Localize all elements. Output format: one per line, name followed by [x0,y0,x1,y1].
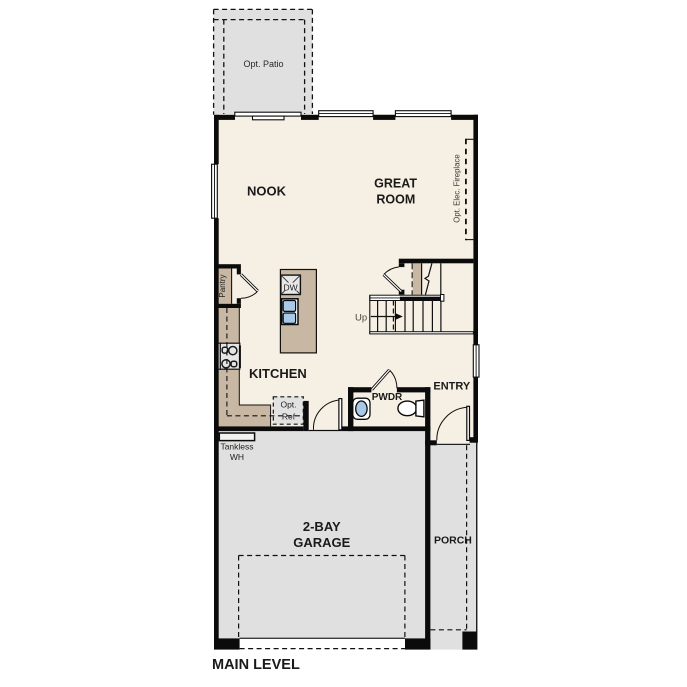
svg-text:Opt.: Opt. [280,400,296,410]
svg-text:2-BAY: 2-BAY [303,519,341,534]
svg-text:GARAGE: GARAGE [293,535,350,550]
svg-text:Up: Up [355,312,367,323]
svg-text:ROOM: ROOM [376,192,415,206]
svg-text:Tankless: Tankless [220,442,253,452]
svg-text:NOOK: NOOK [247,183,287,198]
svg-text:PWDR: PWDR [372,392,403,403]
svg-text:PORCH: PORCH [434,535,472,547]
svg-text:WH: WH [230,452,244,462]
svg-text:DW: DW [284,282,298,292]
svg-text:Opt. Elec. Fireplace: Opt. Elec. Fireplace [452,154,461,222]
svg-text:Ref: Ref [282,412,296,422]
svg-text:ENTRY: ENTRY [433,380,471,392]
svg-text:MAIN LEVEL: MAIN LEVEL [212,657,300,673]
svg-text:GREAT: GREAT [374,176,417,190]
svg-text:Opt. Patio: Opt. Patio [243,59,283,69]
svg-text:Pantry: Pantry [218,274,227,297]
svg-text:KITCHEN: KITCHEN [249,366,307,381]
